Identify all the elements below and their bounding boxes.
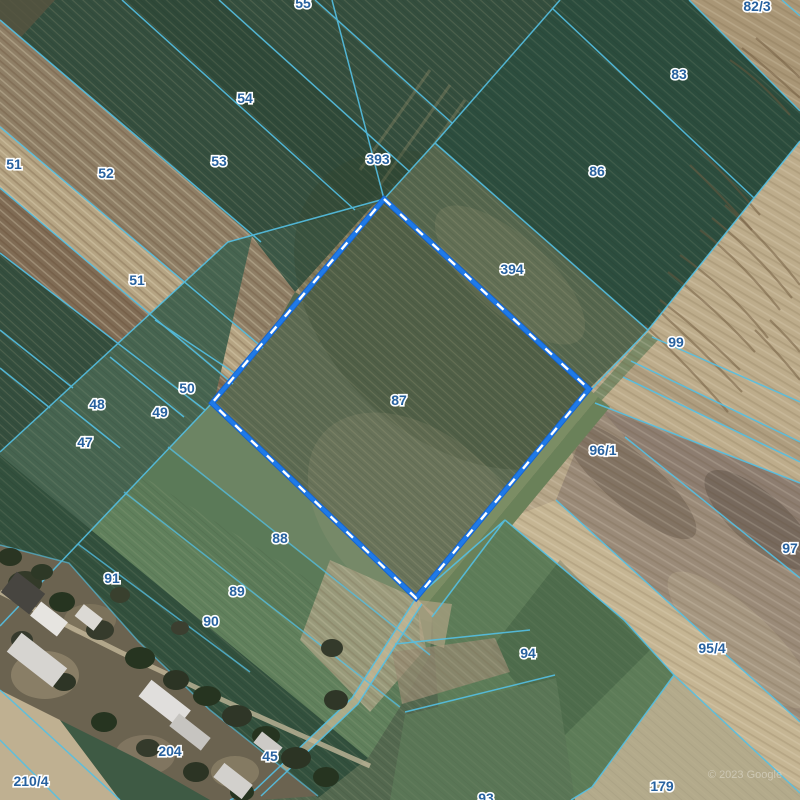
svg-text:210/4: 210/4 [13,773,48,789]
svg-text:82/3: 82/3 [743,0,770,14]
svg-text:95/4: 95/4 [698,640,725,656]
svg-text:204: 204 [158,743,182,759]
svg-text:94: 94 [520,645,536,661]
svg-text:97: 97 [782,540,798,556]
svg-text:50: 50 [179,380,195,396]
svg-text:48: 48 [89,396,105,412]
svg-text:54: 54 [237,90,253,106]
svg-text:51: 51 [6,156,22,172]
svg-text:179: 179 [650,778,674,794]
svg-text:87: 87 [391,392,407,408]
svg-text:49: 49 [152,404,168,420]
svg-text:45: 45 [262,748,278,764]
svg-text:86: 86 [589,163,605,179]
svg-text:88: 88 [272,530,288,546]
svg-text:55: 55 [295,0,311,11]
svg-text:53: 53 [211,153,227,169]
svg-text:93: 93 [478,790,494,800]
svg-text:51: 51 [129,272,145,288]
svg-text:393: 393 [366,151,390,167]
svg-text:© 2023 Google: © 2023 Google [708,769,782,781]
svg-text:89: 89 [229,583,245,599]
svg-text:394: 394 [500,261,524,277]
svg-text:90: 90 [203,613,219,629]
svg-text:99: 99 [668,334,684,350]
svg-text:96/1: 96/1 [589,442,616,458]
svg-text:83: 83 [671,66,687,82]
svg-text:52: 52 [98,165,114,181]
svg-text:91: 91 [104,570,120,586]
svg-text:47: 47 [77,434,93,450]
